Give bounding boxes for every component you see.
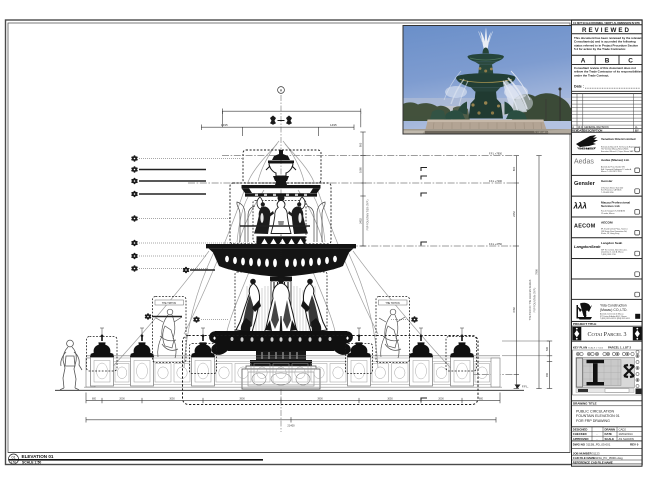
svg-text:4782: 4782 (512, 307, 516, 313)
svg-text:REVIEWED: REVIEWED (582, 27, 631, 34)
svg-text:900: 900 (546, 372, 549, 377)
svg-text:VENETIAN: VENETIAN (578, 146, 594, 150)
svg-text:3050: 3050 (169, 398, 175, 401)
svg-text:SCALE 1:7,500: SCALE 1:7,500 (588, 347, 604, 350)
svg-text:CHECKED: CHECKED (573, 432, 587, 436)
svg-text:2000: 2000 (438, 398, 444, 401)
svg-text:DATE: DATE (605, 432, 613, 436)
svg-text:1:50: 1:50 (11, 460, 17, 464)
svg-text:C1 NOT SCALE DRAWING. VERIFY A: C1 NOT SCALE DRAWING. VERIFY AL DIMENSIO… (573, 21, 640, 25)
svg-text:Aedas: Aedas (574, 158, 594, 165)
svg-text:PARCEL 1, LOT 2: PARCEL 1, LOT 2 (608, 346, 631, 350)
svg-text:21400: 21400 (287, 424, 295, 428)
svg-text:REV 0: REV 0 (630, 443, 639, 447)
svg-text:2452: 2452 (359, 218, 363, 224)
svg-text:ELEVATION 01: ELEVATION 01 (22, 454, 54, 459)
svg-text:PUBLIC CIRCULATION: PUBLIC CIRCULATION (576, 409, 614, 413)
svg-text:F.F.L +7900: F.F.L +7900 (489, 152, 503, 155)
svg-text:LangdonSeah: LangdonSeah (574, 244, 601, 249)
svg-text:800: 800 (479, 398, 484, 401)
svg-text:Langdon Seah: Langdon Seah (601, 241, 622, 245)
svg-text:DRAWING TITLE: DRAWING TITLE (573, 402, 597, 406)
svg-text:F.F.L +4750: F.F.L +4750 (489, 243, 503, 246)
svg-text:7900: 7900 (535, 269, 539, 275)
svg-text:DESIGNED: DESIGNED (573, 427, 588, 431)
svg-text:F.F.L +7100: F.F.L +7100 (489, 180, 503, 183)
svg-text:Macau T +853 2871 5953: Macau T +853 2871 5953 (601, 171, 621, 173)
svg-text:SCALE 1:50: SCALE 1:50 (22, 461, 41, 465)
svg-text:DWG NO: DWG NO (573, 443, 586, 447)
svg-text:A: A (581, 57, 586, 64)
svg-text:Services Ltd.: Services Ltd. (601, 204, 620, 208)
svg-text:A: A (572, 125, 574, 129)
svg-text:500: 500 (546, 346, 549, 351)
svg-text:01: 01 (12, 455, 16, 459)
svg-text:Venetian Orient Limited: Venetian Orient Limited (601, 137, 636, 141)
svg-text:-: - (597, 432, 598, 436)
svg-text:THE TRITON: THE TRITON (162, 302, 177, 305)
svg-text:10.4: 10.4 (578, 126, 583, 129)
svg-text:Executive Offices-L2, Taipa, M: Executive Offices-L2, Taipa, Macao SAR (601, 150, 634, 153)
svg-text:B: B (605, 57, 610, 64)
svg-text:FRP FOUNTAIN (TYP.): FRP FOUNTAIN (TYP.) (534, 287, 537, 312)
svg-text:Shatin, NT, Hong Kong: Shatin, NT, Hong Kong (601, 232, 619, 235)
svg-text:3050: 3050 (387, 398, 393, 401)
svg-text:SCALE: SCALE (605, 437, 615, 441)
svg-text:12 andar, Macau: 12 andar, Macau (601, 213, 614, 215)
svg-text:10/04/2014: 10/04/2014 (619, 432, 633, 436)
svg-text:5.4 for action by the Trade Co: 5.4 for action by the Trade Contractor. (574, 47, 626, 51)
svg-text:CAD2: CAD2 (619, 427, 627, 431)
svg-text:JOB NUMBER: JOB NUMBER (573, 451, 592, 455)
svg-text:800: 800 (92, 398, 97, 401)
svg-text:FOR FRP DRAWING: FOR FRP DRAWING (576, 419, 610, 423)
svg-text:(Macau) CO.,LTD.: (Macau) CO.,LTD. (600, 308, 628, 312)
svg-text:3115A_PC_05001.dwg: 3115A_PC_05001.dwg (594, 456, 623, 460)
svg-text:31123: 31123 (592, 451, 600, 455)
svg-text:AS SHOWN: AS SHOWN (619, 437, 634, 441)
svg-text:λλλ: λλλ (573, 202, 587, 211)
svg-text:905: 905 (359, 142, 363, 147)
svg-text:FRP FOUNTAIN TIER (TYP.): FRP FOUNTAIN TIER (TYP.) (367, 199, 370, 230)
svg-text:800: 800 (512, 166, 516, 171)
svg-text:Date :: Date : (574, 85, 584, 89)
svg-text:T 415.433.3700: T 415.433.3700 (601, 192, 614, 194)
svg-text:FOUNTAIN ELEVATION 01: FOUNTAIN ELEVATION 01 (576, 414, 620, 418)
svg-text:C: C (628, 57, 633, 64)
svg-text:THE TRITON: THE TRITON (385, 302, 400, 305)
svg-text:-: - (597, 437, 598, 441)
svg-text:1495: 1495 (330, 123, 337, 127)
svg-text:Gensler: Gensler (574, 181, 596, 187)
svg-text:2000: 2000 (119, 398, 125, 401)
svg-text:3900: 3900 (239, 398, 245, 401)
svg-text:1495: 1495 (221, 123, 228, 127)
svg-text:2452: 2452 (512, 211, 516, 217)
svg-text:F.F.L.: F.F.L. (522, 385, 529, 389)
svg-text:3900: 3900 (317, 398, 323, 401)
svg-text:AECOM: AECOM (601, 220, 613, 224)
svg-text:DRAWN: DRAWN (605, 427, 616, 431)
svg-text:PROJECT TITLE: PROJECT TITLE (573, 322, 596, 326)
svg-text:AECOM: AECOM (574, 223, 596, 229)
svg-text:APPROVED: APPROVED (573, 437, 589, 441)
svg-text:THE TRIO OF THE GRACES SERIES: THE TRIO OF THE GRACES SERIES (529, 279, 532, 320)
svg-text:3115B_PD_05-001: 3115B_PD_05-001 (586, 443, 611, 447)
svg-text:GENERAL REVISION: GENERAL REVISION (584, 126, 609, 129)
svg-text:1060: 1060 (359, 167, 363, 173)
svg-text:T (853) 2833 1710: T (853) 2833 1710 (601, 254, 616, 256)
svg-text:under the Trade Contract.: under the Trade Contract. (574, 73, 609, 77)
svg-text:Gensler: Gensler (601, 179, 613, 183)
svg-text:KEY PLAN: KEY PLAN (573, 346, 587, 350)
svg-text:T (853) 2870 0322 F (853) 28: T (853) 2870 0322 F (853) 2870 0311 (600, 318, 630, 320)
svg-text:© mfmalin: © mfmalin (534, 130, 548, 134)
svg-text:CAD FILE NAME: CAD FILE NAME (573, 456, 595, 460)
svg-text:Aedas (Macau) Ltd.: Aedas (Macau) Ltd. (601, 158, 630, 162)
